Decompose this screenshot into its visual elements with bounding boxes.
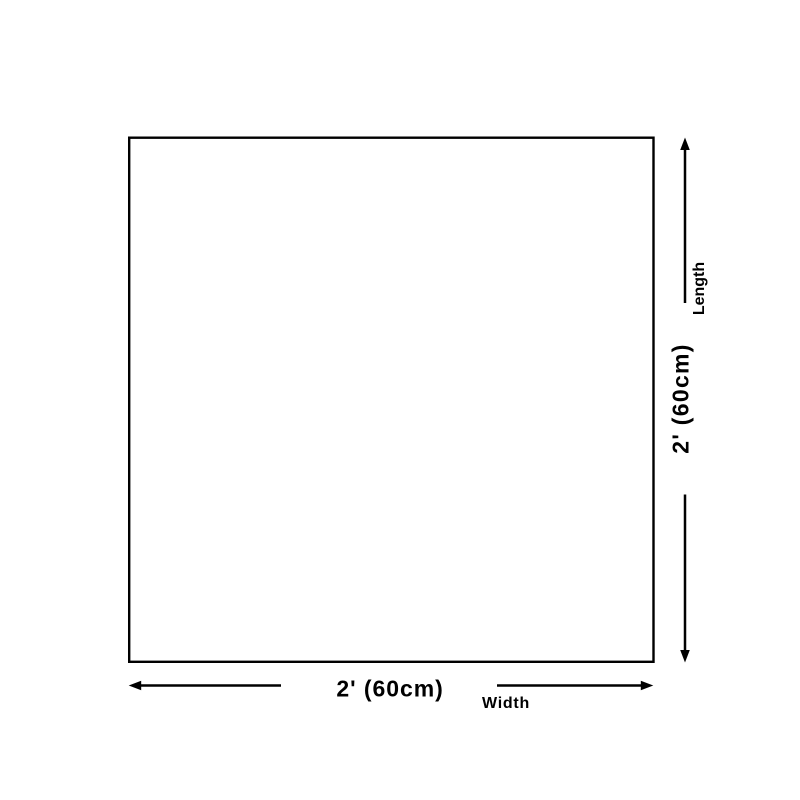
- svg-text:2' (60cm): 2' (60cm): [336, 676, 443, 702]
- svg-text:Width: Width: [482, 695, 530, 712]
- svg-text:Length: Length: [691, 262, 708, 315]
- svg-text:2' (60cm): 2' (60cm): [668, 343, 694, 454]
